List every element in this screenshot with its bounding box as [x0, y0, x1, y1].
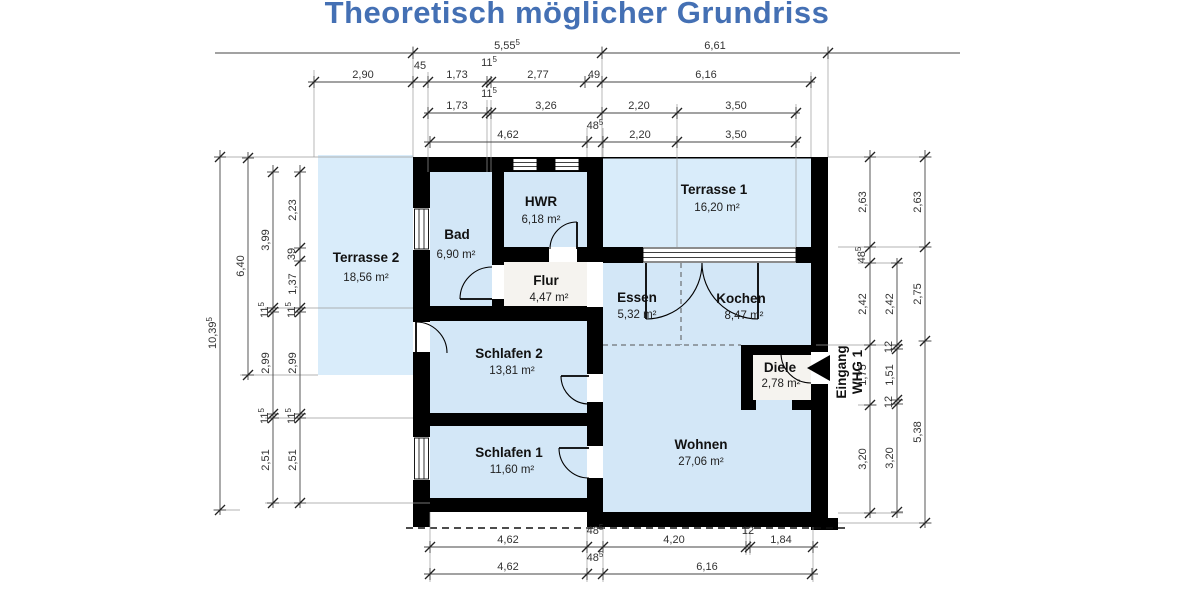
dim-label: 2,99: [287, 352, 299, 373]
room-label-flur: Flur: [533, 273, 559, 288]
wall-diele-bottom-b: [792, 400, 811, 410]
dim-label: 485: [587, 550, 604, 564]
dim-label: 2,51: [287, 449, 299, 470]
dim-chain: 5,5556,61: [215, 38, 960, 59]
entrance-label-line1: Eingang: [834, 345, 849, 398]
wall-band-right: [796, 247, 811, 263]
dim-label: 115: [284, 302, 298, 318]
dim-chain: 2,42121,51123,20: [883, 258, 903, 518]
hwr-area: [504, 172, 587, 247]
dim-label: 115: [257, 408, 271, 424]
wall-flur-schlafen2: [413, 306, 603, 321]
dim-label: 3,20: [857, 448, 869, 469]
room-label-terrasse2: Terrasse 2: [333, 250, 400, 265]
schlafen1-window-icon: [415, 438, 429, 479]
room-area-bad: 6,90 m²: [437, 249, 476, 261]
room-area-schlafen2: 13,81 m²: [489, 365, 535, 377]
room-label-bad: Bad: [444, 227, 470, 242]
room-label-wohnen: Wohnen: [675, 437, 728, 452]
dim-label: 3,50: [725, 100, 746, 112]
dim-label: 3,20: [884, 447, 896, 468]
room-area-terrasse1: 16,20 m²: [694, 202, 740, 214]
room-area-essen: 5,32 m²: [618, 309, 657, 321]
dim-label: 115: [257, 302, 271, 318]
dim-chain: 2,634852,421,753,20: [854, 150, 876, 518]
dim-label: 115: [481, 86, 497, 100]
dim-label: 485: [854, 246, 868, 263]
dim-chain: 3,991152,991152,51: [257, 165, 279, 508]
dim-label: 4,62: [497, 129, 518, 141]
dim-label: 485: [587, 523, 604, 537]
dim-label: 1,37: [287, 273, 299, 294]
dim-label: 10,395: [205, 316, 219, 349]
dim-label: 5,555: [494, 38, 520, 52]
dim-label: 3,99: [260, 229, 272, 250]
dim-label: 2,20: [629, 129, 650, 141]
dim-label: 2,20: [628, 100, 649, 112]
room-label-terrasse1: Terrasse 1: [681, 182, 748, 197]
dim-label: 45: [414, 60, 426, 72]
dim-chain: 2,90451,731152,77496,16: [308, 55, 816, 88]
dim-chain: 2,23391,371152,991152,51: [284, 165, 306, 508]
room-area-diele: 2,78 m²: [762, 378, 801, 390]
room-area-terrasse2: 18,56 m²: [343, 272, 389, 284]
dim-label: 2,23: [287, 199, 299, 220]
dim-label: 12: [883, 396, 895, 408]
dim-label: 1,73: [446, 69, 467, 81]
dim-label: 2,77: [527, 69, 548, 81]
wall-band-left: [603, 247, 643, 263]
wall-diele-bottom-a: [741, 400, 756, 410]
dim-label: 12: [742, 525, 754, 537]
dim-label: 2,90: [352, 69, 373, 81]
dim-label: 1,51: [884, 364, 896, 385]
dim-chain: 1,731153,262,203,50: [423, 86, 801, 119]
entrance-label: Eingang WHG 1: [834, 345, 865, 398]
room-area-flur: 4,47 m²: [530, 292, 569, 304]
wall-bottom-right: [603, 512, 828, 527]
dim-label: 4,62: [497, 561, 518, 573]
dim-label: 4,62: [497, 534, 518, 546]
dim-label: 3,50: [725, 129, 746, 141]
room-area-hwr: 6,18 m²: [522, 214, 561, 226]
room-area-schlafen1: 11,60 m²: [490, 464, 535, 476]
dim-label: 2,42: [857, 293, 869, 314]
dim-label: 2,63: [857, 191, 869, 212]
dim-chain: 6,40: [235, 152, 254, 380]
wall-right: [811, 157, 828, 527]
room-label-schlafen1: Schlafen 1: [475, 445, 543, 460]
room-label-diele: Diele: [764, 360, 797, 375]
dim-chain: 4,624856,16: [424, 550, 818, 580]
dim-chain: 4,624852,203,50: [424, 118, 801, 148]
dim-label: 12: [883, 341, 895, 353]
dim-chain: 10,395: [205, 150, 226, 515]
dim-label: 6,16: [696, 561, 717, 573]
dim-label: 1,73: [446, 100, 467, 112]
hwr-window-icon-2: [555, 159, 579, 171]
hwr-window-icon-1: [513, 159, 537, 171]
dim-label: 6,61: [704, 40, 725, 52]
dim-label: 2,99: [260, 352, 272, 373]
wall-bad-hwr: [492, 172, 504, 249]
dim-label: 115: [481, 55, 497, 69]
room-label-hwr: HWR: [525, 194, 557, 209]
dim-label: 49: [588, 69, 600, 81]
room-label-essen: Essen: [617, 290, 657, 305]
room-label-kochen: Kochen: [716, 291, 766, 306]
room-area-wohnen: 27,06 m²: [678, 456, 724, 468]
dim-label: 115: [284, 408, 298, 424]
dim-label: 1,84: [770, 534, 791, 546]
dim-label: 2,75: [912, 283, 924, 304]
wall-bottom-left: [430, 498, 587, 512]
dim-label: 6,40: [235, 255, 247, 276]
dim-label: 39: [286, 248, 298, 260]
bad-window-icon: [415, 209, 429, 249]
entrance-label-line2: WHG 1: [850, 349, 865, 394]
page-title: Theoretisch möglicher Grundriss: [325, 0, 830, 30]
dim-label: 3,26: [535, 100, 556, 112]
terrasse1-glass-front-icon: [643, 248, 796, 262]
dim-label: 485: [587, 118, 604, 132]
wall-schlafen-divider: [413, 413, 587, 426]
dim-label: 2,63: [912, 191, 924, 212]
floorplan-page: Theoretisch möglicher Grundriss: [0, 0, 1200, 600]
schlafen1-area: [430, 426, 587, 498]
dim-chain: 2,632,755,38: [912, 150, 931, 528]
room-label-schlafen2: Schlafen 2: [475, 346, 543, 361]
dim-label: 5,38: [912, 421, 924, 442]
room-area-kochen: 8,47 m²: [725, 310, 764, 322]
floorplan-svg: Theoretisch möglicher Grundriss: [0, 0, 1200, 600]
terrasse2-area: [318, 155, 413, 375]
dim-label: 2,42: [884, 293, 896, 314]
dim-label: 4,20: [663, 534, 684, 546]
dim-label: 6,16: [695, 69, 716, 81]
dim-label: 2,51: [260, 449, 272, 470]
